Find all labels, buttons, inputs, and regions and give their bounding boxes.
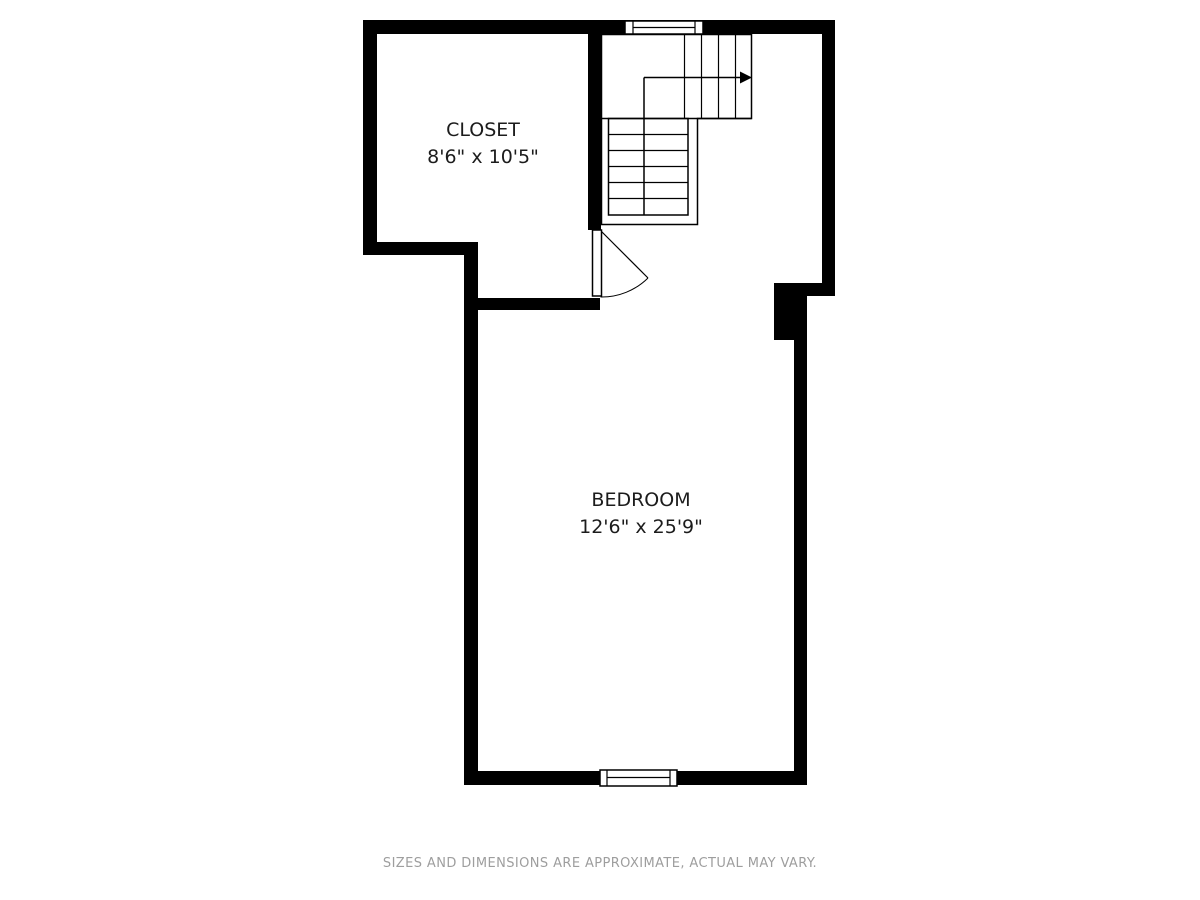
closet-door xyxy=(593,230,649,297)
wall-closet-bottom xyxy=(464,298,600,310)
door-leaf xyxy=(593,230,602,296)
wall-bedroom-left xyxy=(464,242,478,785)
closet-name: CLOSET xyxy=(377,117,589,144)
wall-closet-stair xyxy=(588,20,601,230)
stair-outline xyxy=(602,35,752,225)
floor-plan-page: CLOSET 8'6" x 10'5" BEDROOM 12'6" x 25'9… xyxy=(0,0,1200,900)
bedroom-label: BEDROOM 12'6" x 25'9" xyxy=(478,487,804,541)
disclaimer-text: SIZES AND DIMENSIONS ARE APPROXIMATE, AC… xyxy=(0,856,1200,871)
wall-right-upper xyxy=(822,20,835,296)
window-bottom xyxy=(600,770,677,786)
window-top xyxy=(625,21,703,34)
floor-plan-drawing xyxy=(0,0,1200,900)
door-swing-arc xyxy=(601,278,649,297)
door-open-position xyxy=(602,232,649,279)
bedroom-name: BEDROOM xyxy=(478,487,804,514)
wall-closet-step xyxy=(363,242,478,255)
wall-closet-left xyxy=(363,20,377,255)
staircase xyxy=(602,35,753,225)
closet-label: CLOSET 8'6" x 10'5" xyxy=(377,117,589,171)
wall-bedroom-right xyxy=(794,340,807,785)
bedroom-dimensions: 12'6" x 25'9" xyxy=(478,514,804,541)
closet-dimensions: 8'6" x 10'5" xyxy=(377,144,589,171)
